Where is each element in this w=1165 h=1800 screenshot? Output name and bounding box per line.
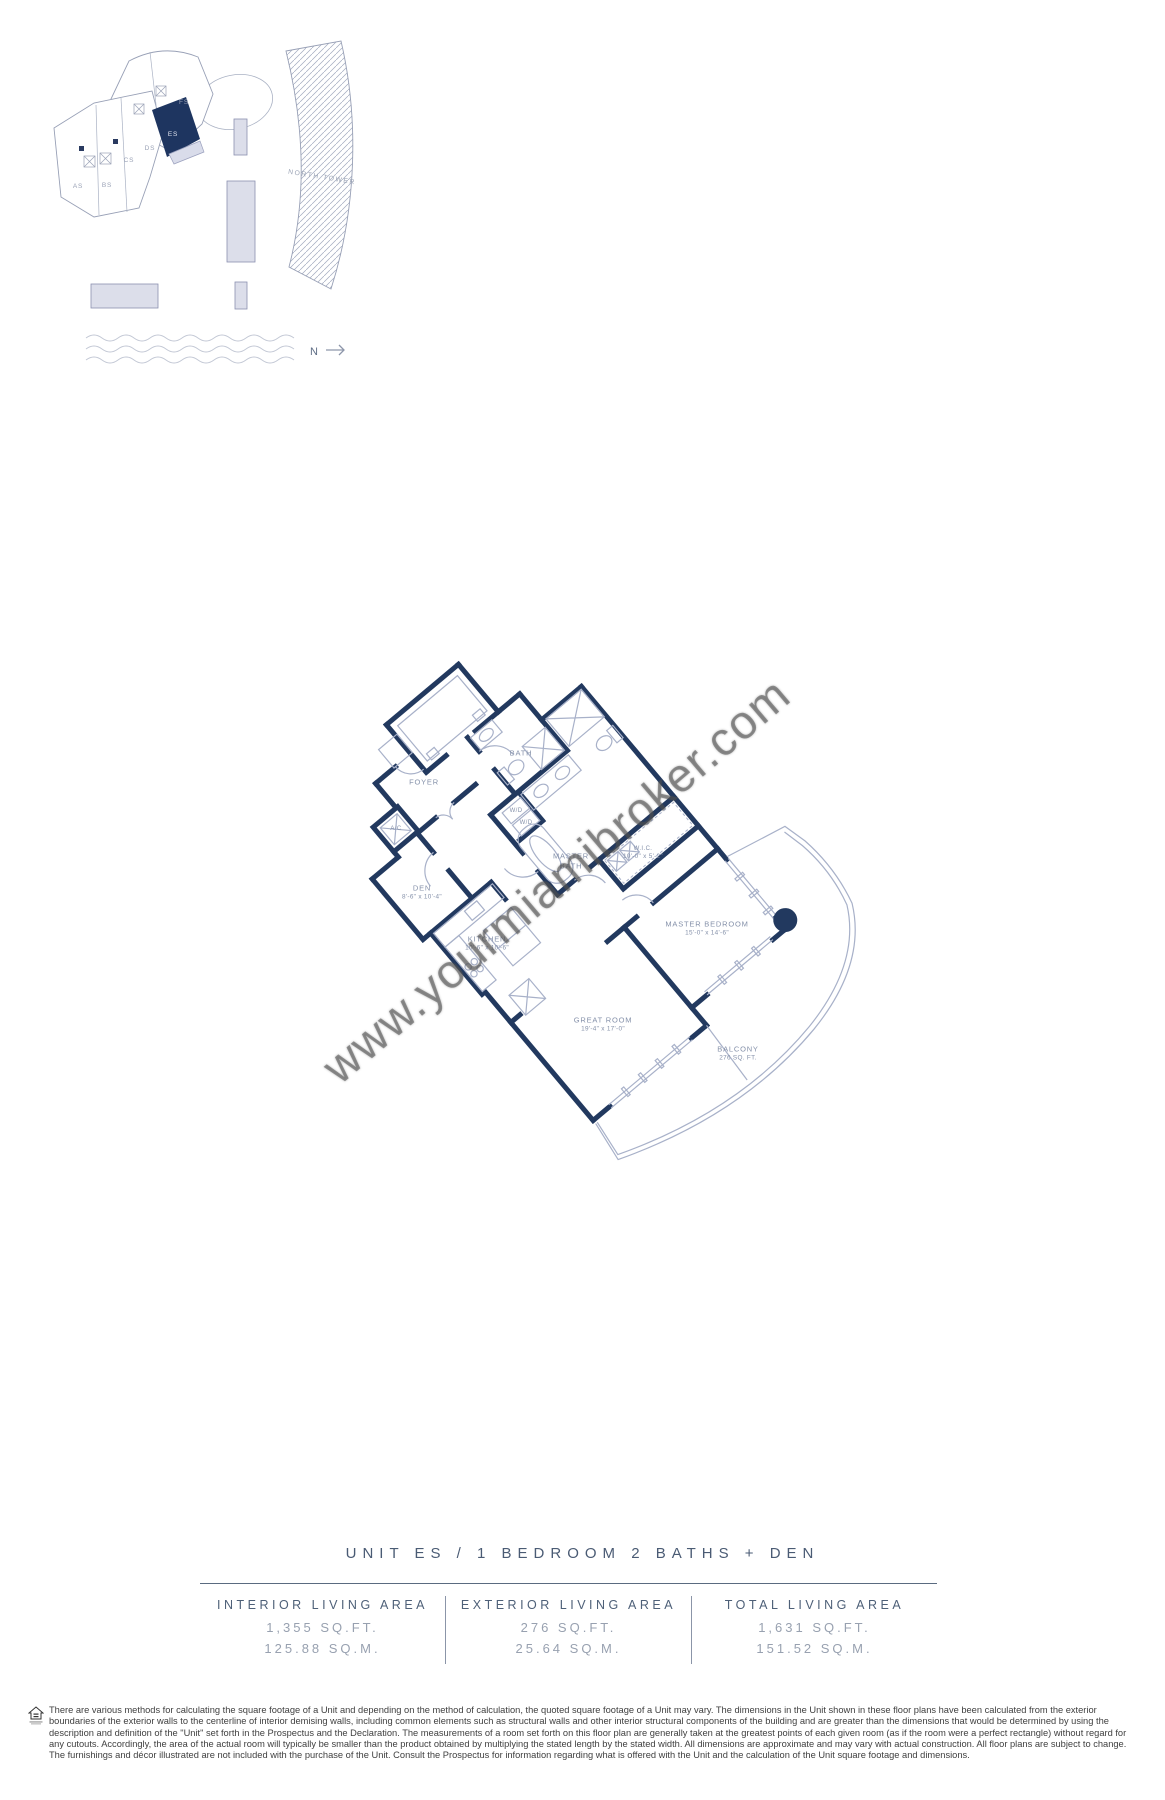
site-unit-label-es: ES bbox=[168, 131, 178, 138]
room-label-wd-2: W/D bbox=[520, 820, 533, 826]
site-unit-label-fs: FS bbox=[179, 99, 189, 106]
stat-label: EXTERIOR LIVING AREA bbox=[446, 1598, 691, 1612]
core-dot bbox=[79, 146, 84, 151]
stat-sqm: 151.52 SQ.M. bbox=[692, 1641, 937, 1656]
room-label-ac: A/C bbox=[390, 826, 401, 832]
room-label-great-room: GREAT ROOM 19'-4" x 17'-0" bbox=[574, 1016, 633, 1033]
stat-label: TOTAL LIVING AREA bbox=[692, 1598, 937, 1612]
core-dot bbox=[113, 139, 118, 144]
unit-floor-plan bbox=[300, 600, 900, 1220]
floor-plan-sheet: NORTH TOWER AS BS bbox=[0, 0, 1165, 1800]
equal-housing-icon bbox=[28, 1705, 44, 1726]
room-label-bath: BATH bbox=[510, 749, 533, 758]
room-label-wd-1: W/D bbox=[510, 808, 523, 814]
room-label-foyer: FOYER bbox=[409, 778, 439, 787]
room-label-master-bedroom: MASTER BEDROOM 15'-0" x 14'-6" bbox=[665, 920, 748, 937]
site-unit-label-cs: CS bbox=[124, 157, 135, 164]
stat-sqft: 1,631 SQ.FT. bbox=[692, 1620, 937, 1635]
disclaimer-block: There are various methods for calculatin… bbox=[28, 1705, 1142, 1762]
stat-sqm: 25.64 SQ.M. bbox=[446, 1641, 691, 1656]
room-label-balcony: BALCONY 276 SQ. FT. bbox=[717, 1045, 758, 1062]
amenity-block bbox=[227, 181, 255, 262]
amenity-block bbox=[234, 119, 247, 155]
site-key-plan: NORTH TOWER AS BS bbox=[40, 30, 380, 380]
amenity-block bbox=[235, 282, 247, 309]
north-label: N bbox=[310, 346, 318, 358]
stat-sqft: 1,355 SQ.FT. bbox=[200, 1620, 445, 1635]
north-tower-footprint bbox=[286, 41, 353, 289]
water-waves bbox=[86, 335, 294, 363]
disclaimer-text: There are various methods for calculatin… bbox=[49, 1705, 1142, 1762]
site-unit-label-as: AS bbox=[73, 183, 83, 190]
page-title: UNIT ES / 1 BEDROOM 2 BATHS + DEN bbox=[0, 1545, 1165, 1562]
stat-label: INTERIOR LIVING AREA bbox=[200, 1598, 445, 1612]
room-label-den: DEN 8'-6" x 10'-4" bbox=[402, 884, 442, 901]
north-arrow-icon bbox=[326, 345, 344, 355]
stat-interior: INTERIOR LIVING AREA 1,355 SQ.FT. 125.88… bbox=[200, 1596, 445, 1664]
north-indicator: N bbox=[306, 340, 352, 362]
stat-sqm: 125.88 SQ.M. bbox=[200, 1641, 445, 1656]
amenity-block bbox=[91, 284, 158, 308]
living-area-stats: INTERIOR LIVING AREA 1,355 SQ.FT. 125.88… bbox=[200, 1583, 937, 1664]
stat-sqft: 276 SQ.FT. bbox=[446, 1620, 691, 1635]
stat-exterior: EXTERIOR LIVING AREA 276 SQ.FT. 25.64 SQ… bbox=[445, 1596, 691, 1664]
site-unit-label-ds: DS bbox=[145, 145, 156, 152]
stat-total: TOTAL LIVING AREA 1,631 SQ.FT. 151.52 SQ… bbox=[691, 1596, 937, 1664]
site-unit-label-bs: BS bbox=[102, 182, 112, 189]
